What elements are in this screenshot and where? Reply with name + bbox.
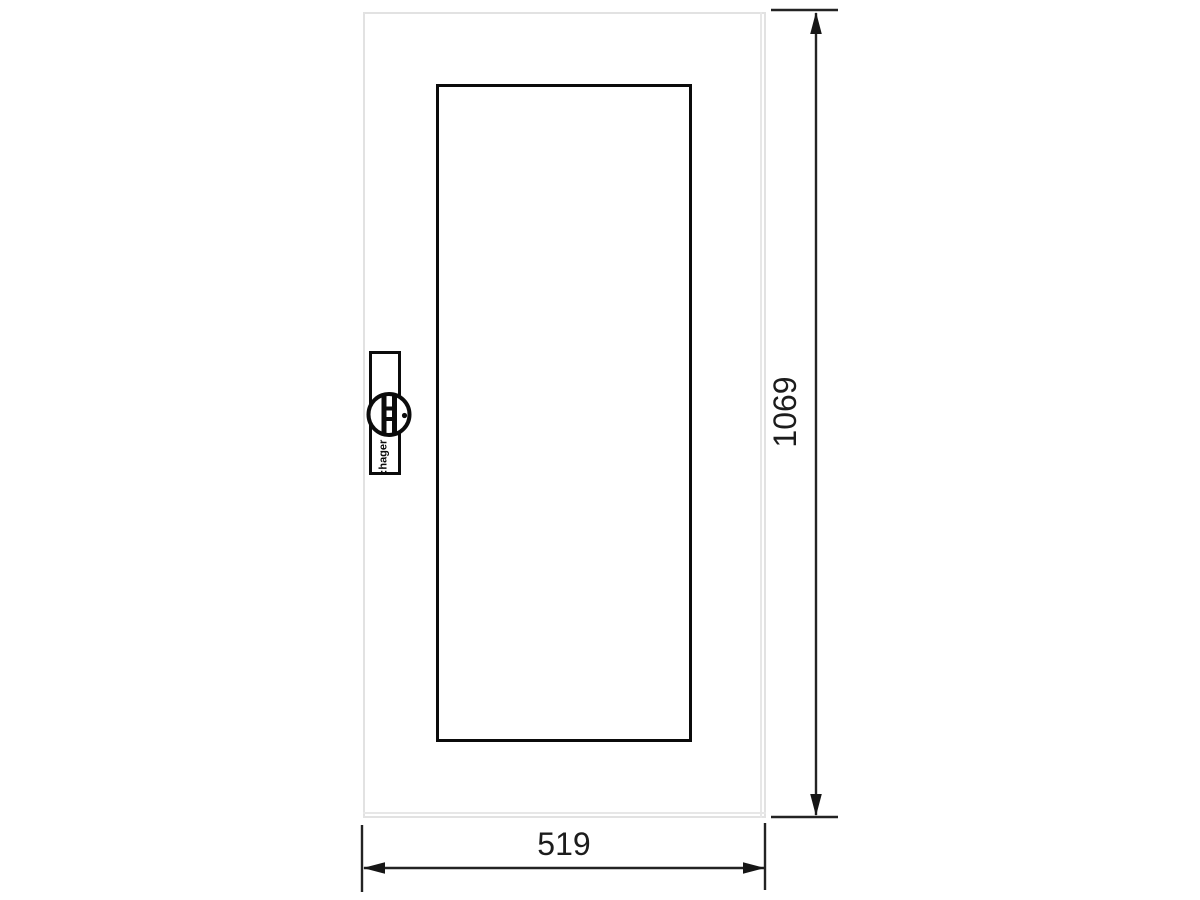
height-dimension-label: 1069 — [767, 367, 803, 457]
arrowhead-right-icon — [743, 862, 765, 874]
width-dimension-label: 519 — [519, 826, 609, 862]
dimension-lines — [0, 0, 1200, 900]
technical-drawing-canvas: :hager 1069 519 — [0, 0, 1200, 900]
arrowhead-down-icon — [810, 794, 822, 816]
arrowhead-left-icon — [363, 862, 385, 874]
arrowhead-up-icon — [810, 12, 822, 34]
